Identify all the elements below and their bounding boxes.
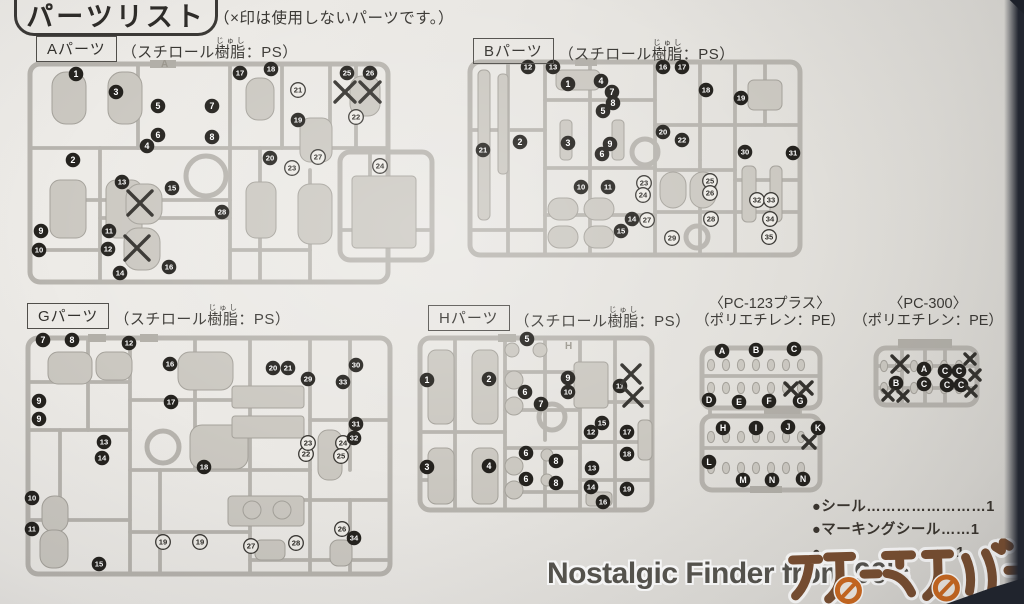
part-number-marker: 4 [594,74,609,89]
part-number-marker: 14 [113,266,128,281]
part-number-marker: 4 [140,139,155,154]
part-number-marker: 33 [764,193,779,208]
svg-text:12: 12 [587,428,595,437]
svg-text:28: 28 [218,208,226,217]
part-number-marker: A [715,344,730,359]
part-number-marker: 29 [301,372,316,387]
part-shape [273,501,291,519]
part-number-marker: 32 [750,193,765,208]
svg-text:18: 18 [702,86,710,95]
part-number-marker: E [732,395,747,410]
part-number-marker: 5 [151,99,166,114]
part-shape [498,74,508,174]
svg-text:19: 19 [737,94,745,103]
svg-text:33: 33 [339,378,347,387]
part-shape [767,359,774,370]
part-number-marker: 19 [193,535,208,550]
svg-text:24: 24 [639,191,648,200]
part-number-marker: 15 [92,557,107,572]
svg-text:16: 16 [166,360,174,369]
svg-text:6: 6 [523,387,528,397]
svg-text:C: C [956,366,963,376]
part-number-marker: 22 [675,133,690,148]
svg-text:13: 13 [588,464,596,473]
svg-text:31: 31 [352,420,361,429]
runner-H: H12345666788910111213141516171819 [420,332,652,510]
part-number-marker: 26 [335,522,350,537]
svg-text:M: M [739,475,746,485]
runner-name-box: Bパーツ [473,38,554,64]
part-number-marker: 28 [215,205,230,220]
part-shape [707,382,714,393]
sprue-ring [686,226,708,248]
part-shape [752,382,759,393]
part-number-marker: 2 [513,135,528,150]
svg-text:A: A [719,346,726,356]
part-shape [584,198,614,220]
svg-text:L: L [706,457,712,467]
part-number-marker: 12 [101,242,116,257]
part-number-marker: 23 [301,436,316,451]
svg-text:2: 2 [71,155,76,165]
svg-text:13: 13 [100,438,108,447]
svg-text:18: 18 [623,450,631,459]
part-number-marker: 7 [534,397,549,412]
part-shape [910,382,917,393]
svg-text:8: 8 [70,335,75,345]
svg-text:9: 9 [37,414,42,424]
part-number-marker: B [749,343,764,358]
part-shape [178,352,233,390]
svg-text:3: 3 [114,87,119,97]
part-number-marker: 30 [349,358,364,373]
part-number-marker: 31 [786,146,801,161]
gate-tab [88,334,106,342]
svg-text:14: 14 [628,215,637,224]
part-shape [352,176,416,248]
part-number-marker: 10 [574,180,589,195]
sprue-ring [186,156,226,196]
part-shape [737,462,744,473]
part-shape [505,481,523,499]
part-number-marker: 7 [36,333,51,348]
part-number-marker: 12 [122,336,137,351]
svg-text:6: 6 [156,130,161,140]
svg-text:23: 23 [304,439,312,448]
part-number-marker: 14 [584,480,599,495]
svg-text:14: 14 [587,483,596,492]
svg-text:C: C [944,380,951,390]
part-shape [767,431,774,442]
material-label: （スチロール樹脂じゅし：PS） [515,305,691,331]
material-label: （スチロール樹脂じゅし：PS） [122,36,298,62]
part-number-marker: 28 [289,536,304,551]
part-number-marker: 9 [603,137,618,152]
part-number-marker: 17 [620,425,635,440]
part-number-marker: 17 [233,66,248,81]
part-shape [737,382,744,393]
svg-text:1: 1 [566,79,571,89]
part-shape [42,496,68,532]
runner-G: 7899101112131415161718191920212223242526… [25,333,390,574]
runner-A: A123456789101112131415161718192021222324… [30,59,432,282]
part-shape [752,462,759,473]
part-number-marker: 27 [640,213,655,228]
svg-text:7: 7 [539,399,544,409]
svg-text:18: 18 [267,65,275,74]
part-shape [722,462,729,473]
unused-part-x-icon [883,390,893,400]
gate-tab [140,334,158,342]
svg-text:28: 28 [292,539,300,548]
part-shape [707,431,714,442]
part-shape [505,371,523,389]
svg-text:7: 7 [610,87,615,97]
part-shape [548,226,578,248]
part-number-marker: 34 [763,212,778,227]
gate-tab [498,334,516,342]
part-number-marker: 26 [703,186,718,201]
svg-text:15: 15 [168,184,177,193]
page-title: パーツリスト [26,4,205,33]
part-number-marker: 35 [762,230,777,245]
svg-text:1: 1 [425,375,430,385]
part-number-marker: D [702,393,717,408]
svg-text:6: 6 [524,448,529,458]
material-label: （スチロール樹脂じゅし：PS） [559,38,735,64]
svg-text:8: 8 [210,132,215,142]
svg-text:9: 9 [39,226,44,236]
part-number-marker: 2 [482,372,497,387]
part-number-marker: 29 [665,231,680,246]
part-shape [126,184,162,224]
svg-text:9: 9 [37,396,42,406]
part-number-marker: 24 [373,159,388,174]
part-number-marker: C [952,364,967,379]
part-number-marker: 8 [606,96,621,111]
part-shape [428,350,454,424]
svg-text:18: 18 [200,463,208,472]
svg-text:10: 10 [564,388,572,397]
page-title-box: パーツリスト [14,0,218,36]
svg-text:4: 4 [599,76,604,86]
svg-text:10: 10 [28,494,36,503]
svg-text:6: 6 [524,474,529,484]
svg-text:22: 22 [678,136,686,145]
part-number-marker: J [781,420,796,435]
svg-text:C: C [791,344,798,354]
svg-text:13: 13 [118,178,126,187]
svg-text:N: N [800,474,806,484]
part-shape [505,397,523,415]
svg-text:7: 7 [41,335,46,345]
part-shape [797,359,804,370]
part-shape [505,457,523,475]
svg-text:2: 2 [487,374,492,384]
svg-text:12: 12 [125,339,133,348]
svg-text:8: 8 [554,456,559,466]
svg-text:30: 30 [741,148,749,157]
part-number-marker: 26 [363,66,378,81]
part-shape [910,360,917,371]
part-number-marker: 10 [25,491,40,506]
part-number-marker: 25 [334,449,349,464]
photo-edge-shadow [1004,0,1024,604]
svg-text:27: 27 [247,542,255,551]
svg-text:5: 5 [525,334,530,344]
svg-text:14: 14 [98,454,107,463]
part-number-marker: 2 [66,153,81,168]
part-number-marker: 6 [151,128,166,143]
svg-text:19: 19 [196,538,204,547]
part-number-marker: 8 [205,130,220,145]
svg-text:31: 31 [789,149,798,158]
svg-text:8: 8 [554,478,559,488]
part-number-marker: I [749,421,764,436]
part-shape [255,540,285,560]
svg-text:7: 7 [210,101,215,111]
runner-letter-mold: H [565,341,572,352]
svg-text:17: 17 [623,428,631,437]
svg-text:16: 16 [599,498,607,507]
part-shape [638,420,652,460]
part-number-marker: 18 [620,447,635,462]
unused-part-x-icon [622,365,640,383]
svg-text:14: 14 [116,269,125,278]
part-shape [737,359,744,370]
runner-name-box: Gパーツ [27,303,109,329]
svg-text:11: 11 [105,227,114,236]
part-number-marker: 20 [656,125,671,140]
part-number-marker: 19 [734,91,749,106]
part-shape [96,352,132,380]
runner-B: 1234567891011121314151617181920212223242… [470,58,800,255]
part-number-marker: 17 [164,395,179,410]
part-number-marker: 8 [65,333,80,348]
part-number-marker: 9 [32,394,47,409]
runner-name-box: Hパーツ [428,305,510,331]
section-label-pc300: 〈PC-300〉（ポリエチレン：PE） [853,296,1003,330]
part-number-marker: 18 [197,460,212,475]
runner-PC-123: ABCDEFGHIJKLMNN [702,342,826,493]
svg-text:20: 20 [659,128,667,137]
part-number-marker: 25 [340,66,355,81]
part-shape [767,382,774,393]
part-number-marker: 6 [519,446,534,461]
part-number-marker: 9 [32,412,47,427]
svg-text:8: 8 [611,98,616,108]
part-number-marker: C [787,342,802,357]
svg-text:4: 4 [487,461,492,471]
part-number-marker: 6 [518,385,533,400]
svg-text:27: 27 [643,216,651,225]
part-number-marker: 3 [109,85,124,100]
part-shape [660,172,686,208]
svg-text:E: E [736,397,742,407]
part-shape [428,448,454,504]
svg-text:H: H [720,423,726,433]
svg-text:26: 26 [366,69,374,78]
svg-text:C: C [958,380,965,390]
svg-text:K: K [815,423,822,433]
part-number-marker: 18 [264,62,279,77]
svg-text:21: 21 [294,86,303,95]
part-shape [782,462,789,473]
part-number-marker: 11 [102,224,117,239]
svg-text:23: 23 [288,164,296,173]
part-shape [722,382,729,393]
unused-part-x-icon [965,354,975,364]
material-label: （スチロール樹脂じゅし：PS） [114,303,290,329]
part-number-marker: A [917,362,932,377]
part-number-marker: F [762,394,777,409]
svg-text:G: G [797,396,804,406]
svg-text:25: 25 [706,177,715,186]
part-number-marker: K [811,421,826,436]
part-shape [472,350,498,424]
svg-text:25: 25 [343,69,352,78]
part-shape [505,343,519,357]
part-number-marker: 14 [95,451,110,466]
svg-text:19: 19 [159,538,167,547]
svg-text:23: 23 [640,179,648,188]
svg-text:32: 32 [753,196,761,205]
part-number-marker: 16 [596,495,611,510]
part-shape [330,540,352,566]
svg-text:C: C [921,379,928,389]
svg-text:24: 24 [339,439,348,448]
part-number-marker: 5 [520,332,535,347]
part-shape [243,501,261,519]
svg-text:25: 25 [337,452,346,461]
svg-text:C: C [942,366,949,376]
part-number-marker: 8 [549,476,564,491]
part-number-marker: 19 [620,482,635,497]
svg-text:17: 17 [236,69,244,78]
svg-text:3: 3 [566,138,571,148]
part-number-marker: 24 [636,188,651,203]
part-number-marker: 4 [482,459,497,474]
part-number-marker: 20 [263,151,278,166]
part-number-marker: B [889,376,904,391]
svg-text:24: 24 [376,162,385,171]
part-number-marker: 15 [614,224,629,239]
part-number-marker: 20 [266,361,281,376]
svg-text:9: 9 [608,139,613,149]
part-number-marker: 13 [585,461,600,476]
svg-text:10: 10 [577,183,585,192]
part-shape [752,359,759,370]
svg-text:15: 15 [617,227,626,236]
parts-list-manual-photo: A123456789101112131415161718192021222324… [0,0,1024,604]
part-number-marker: C [938,364,953,379]
part-shape [880,360,887,371]
svg-text:A: A [921,364,928,374]
svg-text:J: J [786,422,791,432]
svg-text:3: 3 [425,462,430,472]
section-label-pc123: 〈PC-123プラス〉（ポリエチレン：PE） [688,296,852,330]
runner-PC-300: ABCCCCC [876,339,980,405]
part-number-marker: 15 [595,416,610,431]
svg-text:28: 28 [707,215,715,224]
part-shape [50,180,86,238]
svg-text:9: 9 [566,373,571,383]
part-number-marker: N [765,473,780,488]
svg-text:20: 20 [269,364,277,373]
part-shape [232,386,304,408]
part-number-marker: 13 [115,175,130,190]
part-number-marker: N [796,472,811,487]
svg-text:26: 26 [338,525,346,534]
part-number-marker: H [716,421,731,436]
part-number-marker: 28 [704,212,719,227]
svg-text:29: 29 [668,234,676,243]
svg-text:I: I [755,423,757,433]
part-number-marker: 9 [34,224,49,239]
svg-text:10: 10 [35,246,43,255]
part-number-marker: M [736,473,751,488]
part-shape [767,462,774,473]
svg-text:22: 22 [302,450,310,459]
part-shape [533,343,547,357]
svg-text:19: 19 [294,116,302,125]
svg-text:27: 27 [314,153,322,162]
svg-text:2: 2 [518,137,523,147]
part-shape [584,226,614,248]
svg-text:19: 19 [623,485,631,494]
svg-text:N: N [769,475,775,485]
part-number-marker: 22 [349,110,364,125]
part-number-marker: 34 [347,531,362,546]
runner-name-box: Aパーツ [36,36,117,62]
section-label-a: Aパーツ （スチロール樹脂じゅし：PS） [36,36,298,62]
part-number-marker: 6 [519,472,534,487]
part-number-marker: L [702,455,717,470]
svg-text:4: 4 [145,141,150,151]
svg-text:6: 6 [600,149,605,159]
part-number-marker: 1 [420,373,435,388]
part-number-marker: 19 [156,535,171,550]
part-number-marker: 11 [601,180,616,195]
part-number-marker: 21 [291,83,306,98]
svg-text:29: 29 [304,375,312,384]
part-shape [748,80,782,110]
svg-text:16: 16 [165,263,173,272]
part-number-marker: 14 [625,212,640,227]
svg-text:32: 32 [350,434,358,443]
part-shape [52,72,86,124]
part-number-marker: 19 [291,113,306,128]
part-shape [722,359,729,370]
sprue-ring [147,431,179,463]
part-number-marker: 11 [25,522,40,537]
part-shape [707,359,714,370]
part-number-marker: 1 [69,67,84,82]
svg-text:33: 33 [767,196,775,205]
part-shape [232,416,304,438]
part-shape [548,198,578,220]
part-number-marker: 10 [32,243,47,258]
svg-text:11: 11 [28,525,37,534]
part-number-marker: 32 [347,431,362,446]
part-shape [228,496,304,526]
part-number-marker: 3 [420,460,435,475]
gate-tab [750,486,782,493]
list-item: ●シール……………………1 [812,496,995,519]
part-number-marker: 16 [162,260,177,275]
gate-tab [898,339,952,348]
section-label-g: Gパーツ （スチロール樹脂じゅし：PS） [27,303,290,329]
